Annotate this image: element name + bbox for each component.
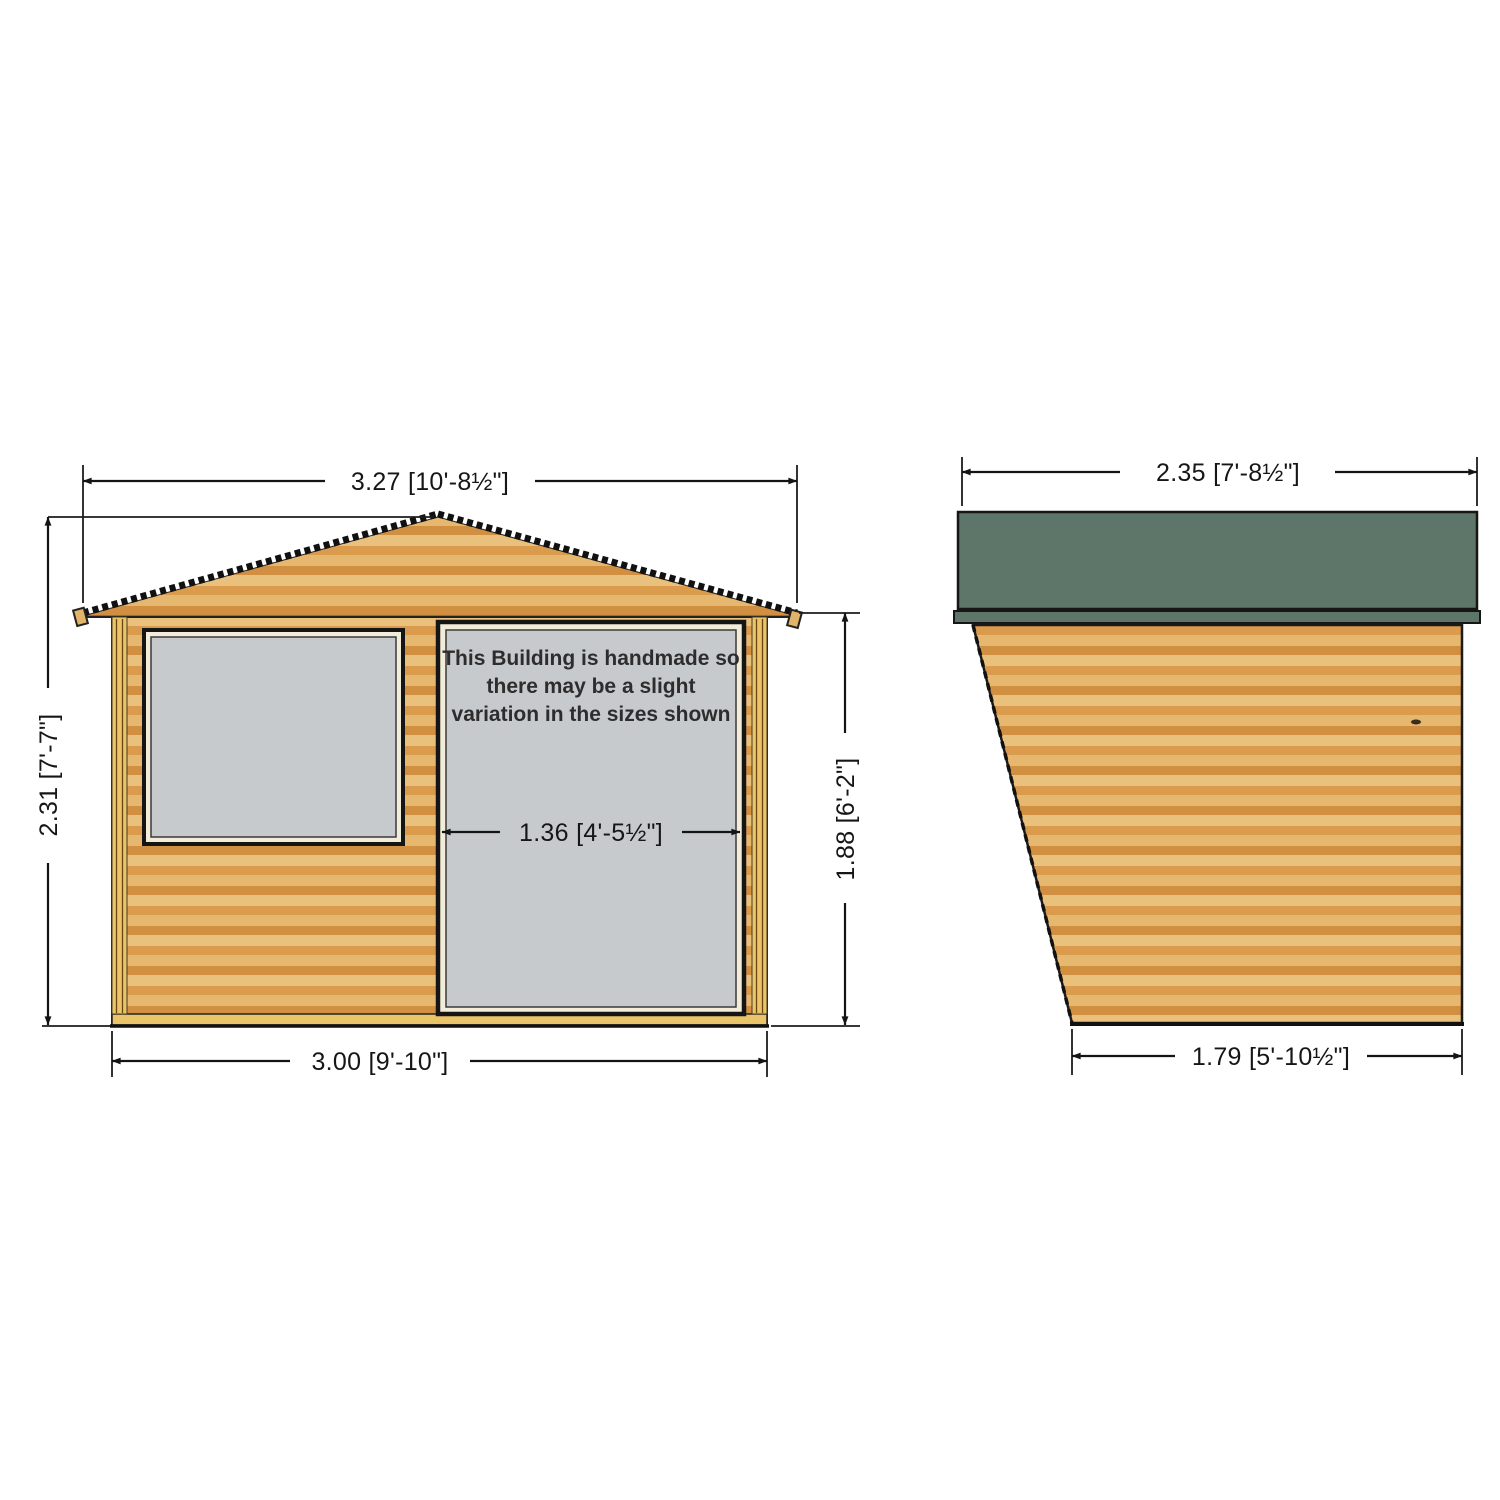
side-roof-fascia — [954, 611, 1480, 623]
handmade-note-line-1: This Building is handmade so — [442, 647, 740, 670]
dim-roof-width-label: 3.27 [10'-8½"] — [351, 468, 509, 496]
dim-base-width-label: 3.00 [9'-10"] — [311, 1048, 448, 1076]
drawing-canvas: This Building is handmade so there may b… — [0, 0, 1500, 1500]
dim-eaves-height-label: 1.88 [6'-2"] — [832, 758, 860, 881]
window-glass — [151, 637, 396, 837]
dim-door-width-label: 1.36 [4'-5½"] — [519, 819, 663, 847]
dim-base-depth-label: 1.79 [5'-10½"] — [1192, 1043, 1350, 1071]
side-roof-panel — [958, 512, 1477, 609]
corner-trim-right — [752, 617, 767, 1014]
handmade-note-line-3: variation in the sizes shown — [452, 703, 731, 726]
side-handle-mark — [1411, 720, 1421, 725]
dim-roof-depth-label: 2.35 [7'-8½"] — [1156, 459, 1300, 487]
dim-overall-height-label: 2.31 [7'-7"] — [35, 714, 63, 837]
shed-dimension-diagram: This Building is handmade so there may b… — [0, 0, 1500, 1500]
front-window — [144, 630, 403, 844]
corner-trim-left — [112, 617, 127, 1014]
handmade-note-line-2: there may be a slight — [487, 675, 696, 698]
